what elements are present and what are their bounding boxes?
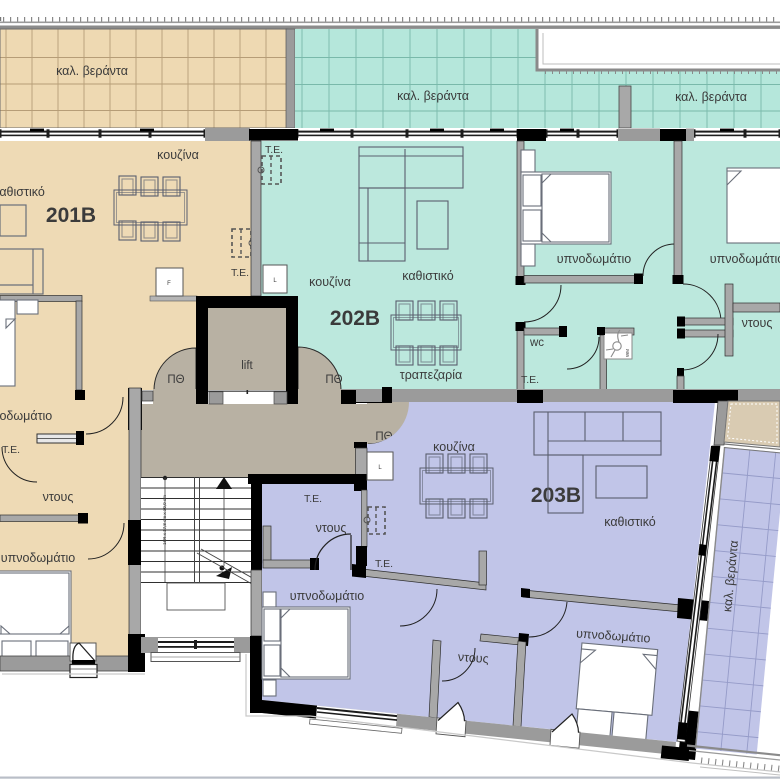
svg-text:T.E.: T.E. (521, 374, 539, 386)
svg-text:καθιστικό: καθιστικό (0, 185, 45, 199)
svg-text:κουζίνα: κουζίνα (157, 148, 199, 162)
svg-text:lift: lift (241, 360, 253, 372)
svg-text:ΠΘ: ΠΘ (167, 374, 184, 386)
svg-text:κουζίνα: κουζίνα (433, 440, 475, 454)
svg-text:ντους: ντους (316, 521, 347, 535)
svg-text:T.E.: T.E. (375, 558, 393, 570)
svg-text:T.E.: T.E. (304, 493, 322, 505)
svg-text:υπνοδωμάτιο: υπνοδωμάτιο (710, 252, 780, 266)
svg-text:201B: 201B (46, 204, 96, 227)
svg-text:καλ. βεράντα: καλ. βεράντα (56, 64, 128, 78)
svg-text:καλ. βεράντα: καλ. βεράντα (397, 89, 469, 103)
svg-text:202B: 202B (330, 307, 380, 330)
svg-text:καλ. βεράντα: καλ. βεράντα (675, 90, 747, 104)
svg-text:κουζίνα: κουζίνα (309, 275, 351, 289)
svg-text:υπνοδωμάτιο: υπνοδωμάτιο (0, 409, 52, 423)
svg-text:T.E.: T.E. (265, 144, 283, 156)
svg-text:F: F (167, 281, 171, 287)
svg-text:T.E.: T.E. (231, 267, 249, 279)
svg-text:υπνοδωμάτιο: υπνοδωμάτιο (557, 252, 632, 266)
svg-text:T.E.: T.E. (2, 444, 20, 456)
svg-text:καθιστικό: καθιστικό (604, 515, 656, 529)
svg-text:ΠΘ: ΠΘ (325, 374, 342, 386)
svg-text:WM: WM (625, 349, 630, 357)
svg-text:υπνοδωμάτιο: υπνοδωμάτιο (290, 589, 365, 603)
svg-text:τραπεζαρία: τραπεζαρία (400, 368, 463, 382)
svg-text:υπνοδωμάτιο: υπνοδωμάτιο (1, 551, 76, 565)
svg-text:καθιστικό: καθιστικό (402, 269, 454, 283)
svg-text:203B: 203B (531, 484, 581, 507)
svg-text:wc: wc (529, 337, 544, 349)
svg-text:16R x 17,8 cm x 30,0 cm: 16R x 17,8 cm x 30,0 cm (162, 495, 167, 545)
svg-text:ντους: ντους (43, 490, 74, 504)
svg-text:ντους: ντους (742, 316, 773, 330)
